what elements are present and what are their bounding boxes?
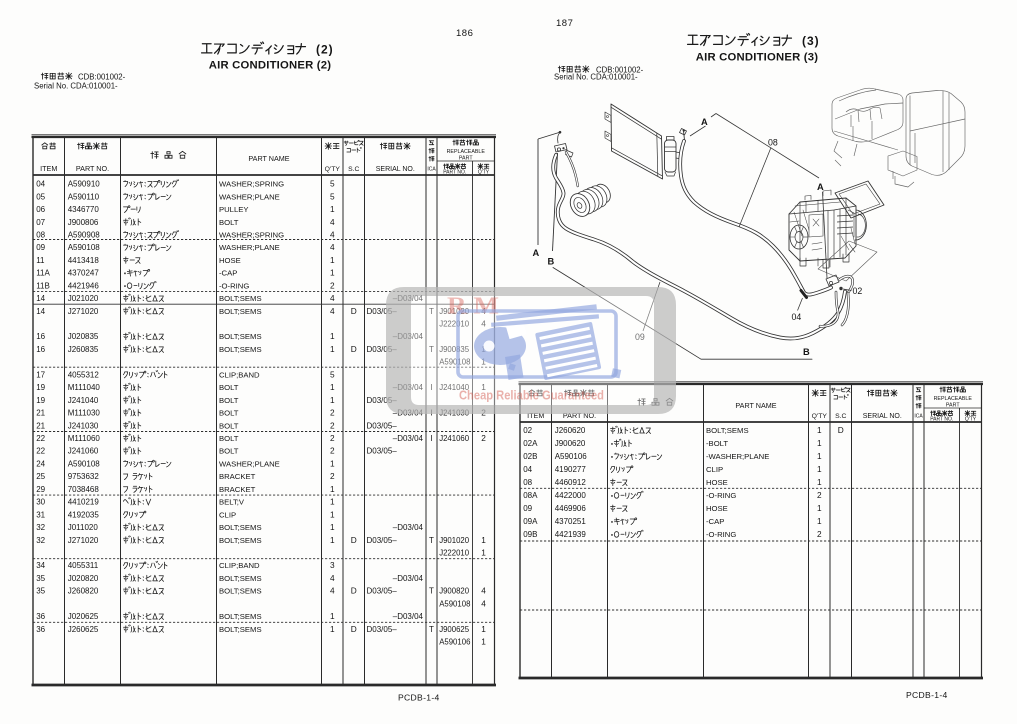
svg-text:A: A — [533, 248, 540, 258]
svg-text:04: 04 — [792, 312, 802, 322]
svg-text:09: 09 — [635, 332, 645, 342]
svg-text:A: A — [701, 117, 708, 127]
svg-text:02: 02 — [853, 286, 863, 296]
svg-text:08: 08 — [768, 138, 778, 148]
svg-text:B: B — [803, 347, 810, 357]
svg-text:B: B — [548, 257, 555, 267]
svg-text:A: A — [817, 182, 824, 192]
